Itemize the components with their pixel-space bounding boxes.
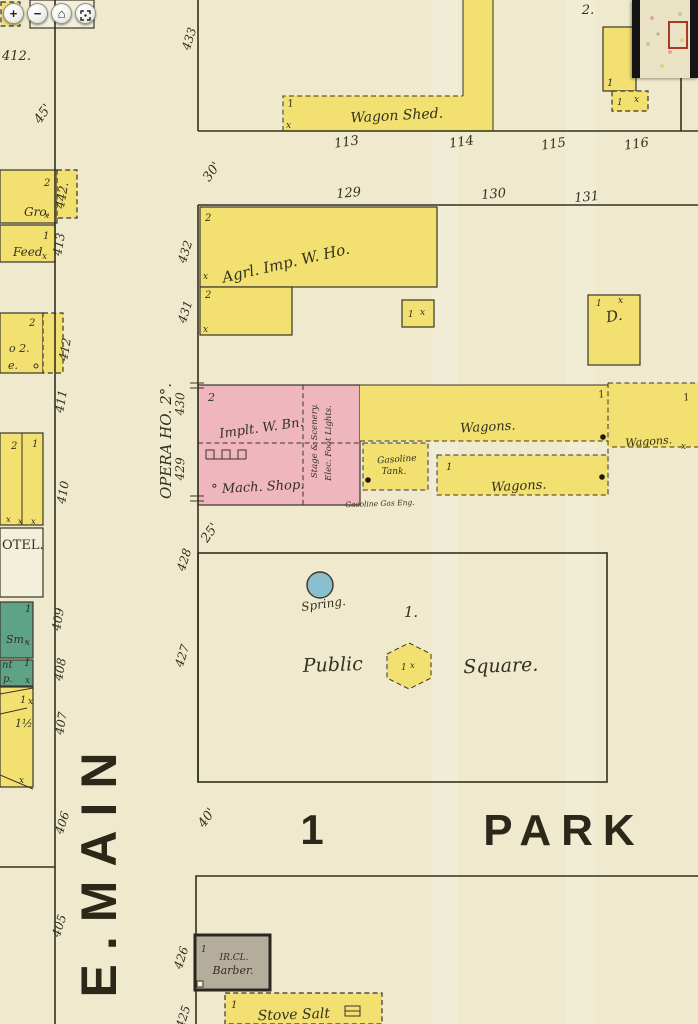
minimap[interactable]: [632, 0, 698, 78]
label-barn-stories: 1½: [15, 717, 33, 730]
story-mark: 1: [607, 78, 613, 89]
minimap-edge-left: [632, 0, 640, 78]
chimney-dot: [365, 477, 371, 483]
map-viewer: E.MAIN PARK 1 45' 30' 25' 40' 113 114 11…: [0, 0, 698, 1024]
minimap-sheet: [640, 0, 690, 78]
home-icon: ⌂: [58, 6, 66, 21]
label-dwelling: D.: [604, 306, 624, 327]
story-mark: 1: [25, 604, 31, 615]
x-mark: x: [681, 442, 686, 452]
story-mark: 2: [10, 441, 17, 452]
street-label-e-main: E.MAIN: [71, 739, 127, 998]
lot-130: 130: [481, 186, 507, 203]
story-mark: 2: [204, 213, 211, 224]
lot-partial-top-left: 412.: [1, 49, 31, 64]
label-stage-scenery: Stage & Scenery.: [310, 404, 320, 478]
x-mark: x: [6, 515, 11, 525]
story-mark: 1: [231, 1000, 237, 1011]
x-mark: x: [286, 121, 291, 131]
label-store-2: e.: [8, 359, 18, 372]
story-mark: 1: [20, 695, 26, 706]
building-agrl-annex: [200, 287, 292, 335]
zoom-out-button[interactable]: −: [27, 3, 48, 24]
fullscreen-button[interactable]: [75, 3, 96, 24]
outlot-2: 2.: [581, 3, 594, 18]
x-mark: x: [420, 308, 425, 318]
label-feed: Feed: [12, 245, 43, 259]
x-mark: x: [203, 272, 208, 282]
x-mark: x: [19, 776, 24, 786]
building-small-shed: [402, 300, 434, 327]
story-mark: 2: [28, 318, 35, 329]
x-mark: x: [634, 95, 639, 105]
story-mark: 1: [596, 299, 602, 309]
x-mark: x: [28, 697, 33, 707]
plus-icon: +: [10, 6, 18, 21]
story-mark: 2: [204, 290, 211, 301]
minus-icon: −: [34, 6, 42, 21]
story-mark: 1: [24, 658, 30, 669]
label-hotel: OTEL.: [2, 538, 44, 553]
label-barber-ircl: IR.CL.: [219, 953, 249, 963]
x-mark: x: [31, 517, 36, 527]
x-mark: x: [18, 517, 23, 527]
map-controls: + − ⌂: [3, 3, 96, 24]
chimney-dot: [600, 434, 606, 440]
story-mark: 1: [32, 439, 38, 450]
chimney-dot: [599, 474, 605, 480]
label-store-1: o 2.: [9, 342, 30, 355]
label-paint-2: p.: [3, 674, 13, 685]
story-mark: 1: [408, 310, 414, 320]
paper-streak: [432, 0, 458, 1024]
x-mark: x: [618, 296, 623, 306]
label-square: Square.: [463, 654, 539, 679]
story-mark: 2: [207, 391, 215, 404]
x-mark: x: [203, 325, 208, 335]
lot-131: 131: [574, 189, 600, 206]
label-tank: Tank.: [382, 467, 407, 477]
label-elec-footlights: Elec. Foot Lights.: [324, 405, 334, 482]
story-mark: 1: [43, 231, 49, 242]
story-mark: 2: [43, 178, 50, 189]
x-mark: x: [42, 252, 47, 262]
street-label-park: PARK: [483, 806, 644, 855]
x-mark: x: [44, 211, 49, 221]
story-mark: 1: [401, 663, 407, 673]
x-mark: x: [410, 661, 415, 671]
spring-pond: [307, 572, 333, 598]
paper-streak: [566, 0, 596, 1024]
home-button[interactable]: ⌂: [51, 3, 72, 24]
minimap-viewport-rect[interactable]: [668, 21, 688, 49]
park-block-number: 1: [300, 806, 323, 853]
lot-129: 129: [336, 185, 362, 202]
story-mark: 1: [201, 945, 207, 955]
label-public: Public: [301, 653, 363, 677]
x-mark: x: [25, 676, 30, 686]
label-barber: Barber.: [212, 964, 254, 977]
square-block-number: 1.: [404, 603, 418, 621]
label-paint-1: nt: [2, 660, 13, 671]
barber-outbuilding: [197, 981, 203, 987]
fullscreen-icon: [80, 10, 91, 21]
label-opera-house: OPERA HO. 2°.: [157, 383, 175, 499]
label-wagons-a: Wagons.: [460, 419, 516, 437]
story-mark: 1: [446, 462, 452, 473]
story-mark: 1: [617, 98, 623, 108]
label-wagons-c: Wagons.: [491, 478, 547, 496]
x-mark: x: [25, 638, 30, 648]
map-canvas[interactable]: E.MAIN PARK 1 45' 30' 25' 40' 113 114 11…: [0, 0, 698, 1024]
zoom-in-button[interactable]: +: [3, 3, 24, 24]
minimap-edge-right: [690, 0, 698, 78]
label-stove-salt: Stove Salt: [257, 1006, 330, 1024]
